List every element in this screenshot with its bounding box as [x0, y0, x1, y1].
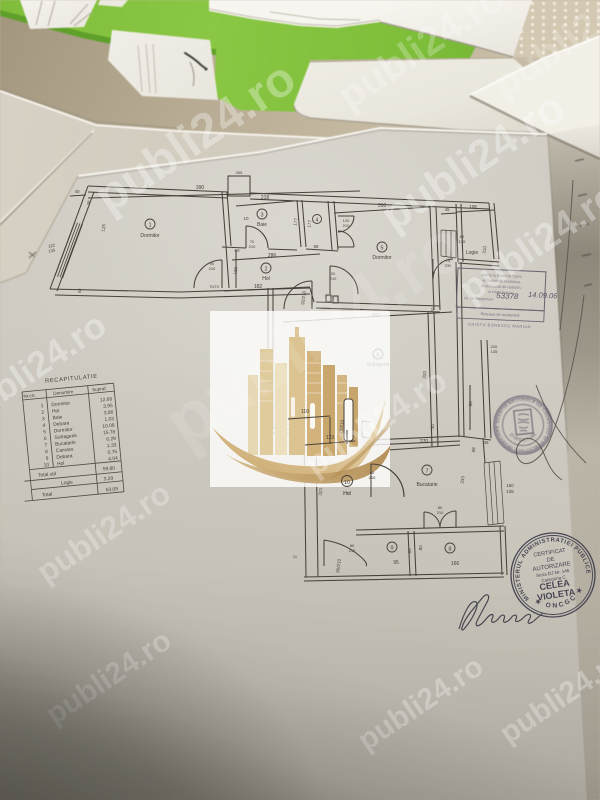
- svg-text:RECAPITULATIE: RECAPITULATIE: [45, 374, 98, 385]
- svg-text:265: 265: [236, 170, 243, 175]
- svg-text:210: 210: [349, 548, 356, 553]
- svg-text:Hol: Hol: [52, 408, 60, 415]
- svg-text:2: 2: [41, 410, 45, 416]
- svg-text:233: 233: [460, 475, 466, 484]
- svg-text:210: 210: [249, 244, 256, 249]
- svg-text:5: 5: [43, 429, 47, 435]
- svg-text:CRISTU BORESCU MARIAN: CRISTU BORESCU MARIAN: [468, 321, 531, 329]
- svg-text:10: 10: [243, 216, 249, 221]
- svg-text:177: 177: [293, 217, 299, 226]
- svg-text:95: 95: [393, 560, 399, 566]
- svg-text:Dormitor: Dormitor: [372, 255, 392, 261]
- svg-text:Bucatarie: Bucatarie: [416, 482, 437, 488]
- svg-text:10: 10: [43, 462, 49, 469]
- svg-text:210: 210: [330, 276, 337, 281]
- svg-text:Nr.crt.: Nr.crt.: [23, 393, 36, 399]
- svg-text:Debara: Debara: [53, 420, 70, 428]
- svg-text:AGENTIA NATIONALA DE CADASTRU: AGENTIA NATIONALA DE CADASTRU SI PUBLICI…: [495, 397, 551, 454]
- svg-text:0.76: 0.76: [107, 449, 117, 456]
- svg-text:68: 68: [471, 447, 477, 453]
- svg-text:210: 210: [437, 510, 444, 515]
- svg-text:8: 8: [448, 547, 451, 553]
- svg-text:270: 270: [420, 439, 429, 445]
- svg-text:125: 125: [101, 223, 107, 232]
- svg-text:210: 210: [209, 266, 216, 271]
- svg-text:Reteaua de rezidential: Reteaua de rezidential: [480, 311, 519, 318]
- svg-text:320: 320: [422, 370, 428, 379]
- svg-text:10.08: 10.08: [102, 423, 115, 430]
- svg-text:DE: DE: [546, 557, 555, 564]
- svg-text:135: 135: [491, 349, 498, 354]
- svg-text:59.80: 59.80: [103, 465, 116, 472]
- svg-text:15.78: 15.78: [103, 429, 116, 436]
- svg-text:4: 4: [316, 218, 319, 224]
- svg-text:11: 11: [293, 554, 298, 559]
- svg-text:310: 310: [378, 203, 387, 209]
- svg-text:230: 230: [445, 263, 452, 268]
- svg-text:8: 8: [45, 449, 49, 455]
- svg-text:4.04: 4.04: [108, 456, 118, 463]
- svg-text:45: 45: [483, 440, 489, 445]
- svg-text:63.09: 63.09: [106, 486, 119, 493]
- svg-text:3.95: 3.95: [103, 403, 113, 410]
- svg-text:80: 80: [407, 548, 413, 554]
- svg-text:6: 6: [44, 436, 48, 442]
- svg-text:92/210: 92/210: [300, 290, 307, 305]
- svg-text:50: 50: [234, 248, 240, 253]
- svg-text:9: 9: [45, 456, 49, 462]
- svg-text:30: 30: [430, 424, 436, 430]
- svg-text:Hol: Hol: [57, 461, 65, 468]
- svg-text:53378: 53378: [496, 291, 519, 301]
- svg-text:135: 135: [459, 239, 466, 244]
- svg-text:70/74: 70/74: [209, 285, 219, 289]
- svg-text:Dormitor: Dormitor: [140, 233, 160, 239]
- svg-text:Total util: Total util: [38, 471, 56, 479]
- svg-text:7: 7: [425, 469, 428, 475]
- svg-text:Baie: Baie: [52, 414, 63, 421]
- svg-text:20: 20: [430, 307, 436, 313]
- svg-text:14.09.06: 14.09.06: [528, 290, 558, 301]
- svg-text:210: 210: [343, 223, 350, 228]
- svg-text:3.86: 3.86: [104, 410, 114, 417]
- svg-text:Dormitor: Dormitor: [54, 427, 74, 435]
- svg-text:Debara: Debara: [56, 453, 73, 461]
- svg-text:Hol: Hol: [262, 276, 270, 282]
- svg-text:3: 3: [260, 213, 263, 219]
- svg-text:Logie: Logie: [61, 480, 74, 487]
- svg-text:1: 1: [148, 223, 151, 229]
- svg-text:150: 150: [506, 483, 514, 488]
- svg-text:6.29: 6.29: [106, 436, 116, 443]
- svg-text:Biroul avizat de cadastru: Biroul avizat de cadastru: [481, 284, 522, 290]
- svg-text:218: 218: [261, 195, 270, 201]
- svg-text:9: 9: [390, 546, 393, 552]
- svg-text:1.03: 1.03: [104, 416, 114, 423]
- svg-text:45: 45: [444, 207, 450, 212]
- svg-text:90: 90: [468, 401, 474, 407]
- svg-text:Dormitor: Dormitor: [51, 400, 71, 408]
- svg-text:Camara: Camara: [56, 447, 74, 455]
- svg-text:Logie: Logie: [466, 250, 478, 256]
- svg-text:Bucatarie: Bucatarie: [55, 440, 76, 448]
- svg-text:3: 3: [42, 416, 46, 422]
- svg-text:182: 182: [254, 284, 263, 290]
- svg-text:Baie: Baie: [257, 222, 267, 228]
- svg-text:90/210: 90/210: [335, 558, 342, 573]
- svg-text:310: 310: [482, 245, 488, 254]
- svg-text:Total: Total: [42, 492, 53, 499]
- svg-text:2: 2: [264, 267, 267, 273]
- svg-text:Nr. de inregistrare: Nr. de inregistrare: [464, 296, 493, 301]
- svg-text:1: 1: [40, 403, 44, 409]
- svg-text:Hol: Hol: [343, 491, 351, 497]
- svg-text:1.33: 1.33: [107, 442, 117, 449]
- svg-text:135: 135: [506, 489, 514, 494]
- svg-text:Supraf.: Supraf.: [92, 386, 107, 392]
- svg-text:5: 5: [380, 246, 383, 252]
- svg-text:108: 108: [469, 204, 477, 209]
- svg-text:4: 4: [42, 423, 46, 429]
- svg-text:135: 135: [48, 247, 56, 253]
- svg-text:323: 323: [318, 487, 324, 496]
- svg-text:286: 286: [268, 253, 277, 259]
- svg-text:138: 138: [233, 266, 239, 275]
- svg-text:177: 177: [307, 219, 313, 228]
- svg-text:166: 166: [451, 561, 460, 567]
- svg-text:40: 40: [74, 189, 80, 194]
- svg-text:58: 58: [313, 244, 319, 249]
- svg-text:DIRECTOR: DIRECTOR: [509, 431, 538, 442]
- svg-text:80: 80: [418, 545, 424, 551]
- svg-text:7: 7: [44, 442, 48, 448]
- svg-text:390: 390: [196, 185, 205, 191]
- svg-text:3.29: 3.29: [103, 476, 113, 483]
- svg-text:12.68: 12.68: [100, 396, 113, 403]
- svg-text:50: 50: [77, 288, 83, 294]
